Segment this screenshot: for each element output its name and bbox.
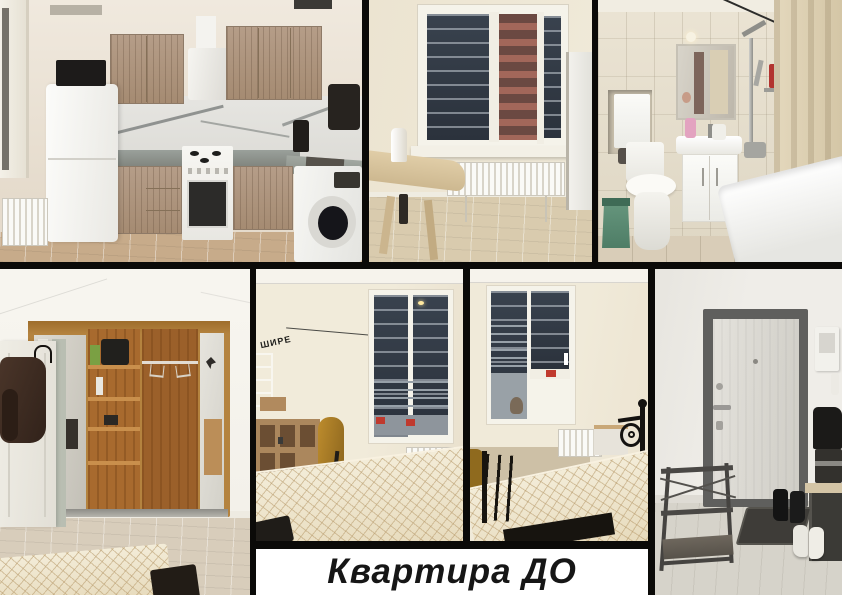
toilet-bowl (634, 192, 670, 250)
wall-socket (278, 437, 283, 444)
decal-string (286, 327, 370, 335)
shelf-board (88, 427, 140, 431)
vanity-handle (702, 168, 704, 186)
kitchen-lower-cabinet-left (110, 166, 182, 234)
balcony-railing (374, 381, 448, 411)
footboard-bars (482, 454, 521, 522)
shower-head (741, 20, 766, 37)
mirror-reflection-curtain (710, 50, 728, 114)
kitchen-hood-chimney (196, 16, 216, 50)
bedroom2-ceiling (470, 269, 648, 283)
black-boots (773, 489, 788, 521)
window-pane-left (427, 14, 489, 140)
green-bin-rim (602, 198, 630, 206)
white-bottle-on-shelf (96, 377, 103, 395)
kitchen-upper-cabinet-right (226, 26, 322, 100)
balcony-ceiling-light (418, 301, 424, 305)
pink-soap-bottle (685, 118, 696, 138)
intercom-screen (819, 333, 835, 353)
kitchen-radiator (2, 198, 48, 246)
stove-oven-door (187, 180, 228, 228)
paper-towel-roll (391, 128, 407, 162)
window-handle (564, 353, 568, 365)
photo-wardrobe (0, 269, 250, 595)
entry-counter (805, 483, 842, 493)
photo-entryway (655, 269, 842, 595)
photo-bedroom-2 (470, 269, 648, 541)
kitchen-microwave (56, 60, 106, 86)
window-sash-bar (537, 12, 544, 144)
white-sneakers (793, 525, 808, 557)
stove-burner (200, 158, 209, 163)
mirror-right-dresser-reflection (204, 419, 222, 475)
corner-cabinet (614, 94, 650, 148)
black-boots (790, 491, 805, 523)
window-pane-right-edge (543, 16, 561, 138)
kitchen-window-blind (2, 8, 9, 170)
dark-item-on-shelf (104, 415, 118, 425)
headboard-post-ball (638, 399, 647, 408)
window-mullion (489, 12, 499, 142)
coffee-machine (815, 449, 842, 483)
ceiling-corner-line (201, 292, 250, 308)
mirror-reflection-face (682, 92, 691, 103)
kitchen-fridge (46, 84, 118, 242)
black-bag-on-shelf (101, 339, 129, 365)
shelf-board (88, 365, 140, 369)
shelf-cubby (300, 425, 315, 447)
coffee-machine-band (815, 461, 842, 466)
wire-hanger (149, 364, 164, 377)
green-box-on-shelf (90, 345, 100, 365)
photo-kitchen (0, 0, 362, 262)
footboard-post (482, 451, 487, 523)
shelf-board (88, 461, 140, 465)
photo-dining-window (369, 0, 592, 262)
cabinet-door-seam (146, 36, 147, 102)
door-peephole (753, 359, 758, 364)
ceiling-corner-line (0, 278, 107, 316)
tub-faucet (744, 142, 766, 158)
black-bag (813, 407, 842, 449)
jacket-sleeve (2, 389, 18, 441)
kitchen-upper-cabinet-left (110, 34, 184, 104)
washer-control-panel (334, 172, 360, 188)
dining-windowsill (411, 146, 575, 157)
stove-knobs (188, 168, 228, 174)
radiator-leg (545, 196, 547, 222)
photo-bedroom-1: ШИРЕ (256, 269, 463, 541)
photo-bathroom (598, 0, 842, 262)
door-handle (713, 405, 731, 410)
bedroom1-ceiling (256, 269, 463, 284)
wire-hanger (175, 364, 191, 378)
radiator-leg (465, 196, 467, 222)
window-pane-right-building (499, 14, 537, 140)
door-lock (716, 421, 723, 430)
balcony-railing (491, 325, 527, 369)
red-sticker (376, 417, 385, 424)
shelf-cubby (260, 425, 275, 447)
caption-bar: Квартира ДО (256, 549, 648, 595)
apartment-photo-collage: ШИРЕ (0, 0, 842, 595)
vanity-door-seam (709, 156, 710, 220)
drawer-seam (146, 188, 180, 189)
cabinet-door-seam (290, 28, 291, 98)
stove-burner (212, 151, 221, 156)
shelf-board (88, 397, 140, 401)
washer-door-glass (318, 206, 348, 240)
white-sneakers (809, 527, 824, 559)
vanity-sink (676, 136, 742, 154)
fridge-door-seam (48, 158, 116, 160)
intercom-handset (831, 373, 839, 395)
kitchen-lower-cabinet-right (233, 166, 293, 230)
vanity-handle (716, 168, 718, 186)
white-jar (712, 124, 726, 140)
table-leg-dark (399, 194, 408, 224)
kitchen-ceiling-vent (294, 0, 332, 9)
mirror-reflection-door (694, 52, 704, 114)
dining-fridge-edge (566, 52, 592, 210)
caption-text: Квартира ДО (327, 552, 577, 592)
wardrobe-rod-section (142, 329, 198, 511)
kitchen-wall-clutter (328, 84, 360, 130)
door-lock (716, 383, 723, 390)
red-sticker (406, 419, 415, 426)
wall-decal-shire: ШИРЕ (259, 334, 292, 350)
shower-column (749, 38, 753, 142)
red-sticker (546, 370, 556, 377)
stove-burner (190, 151, 199, 156)
shelf-unit-top-box (260, 397, 286, 411)
kitchen-curtain-rail (50, 5, 102, 15)
kitchen-kettle (293, 120, 309, 152)
balcony-cat (510, 397, 523, 414)
hand-shower (753, 60, 763, 86)
drawer-seam (146, 210, 180, 211)
balcony-window-glass (413, 295, 448, 433)
mustard-chair (318, 417, 344, 467)
headboard-spiral-center (628, 431, 635, 438)
mirror-light (686, 32, 696, 42)
cabinet-door-seam (258, 28, 259, 98)
bed-frame-corner (150, 564, 200, 595)
